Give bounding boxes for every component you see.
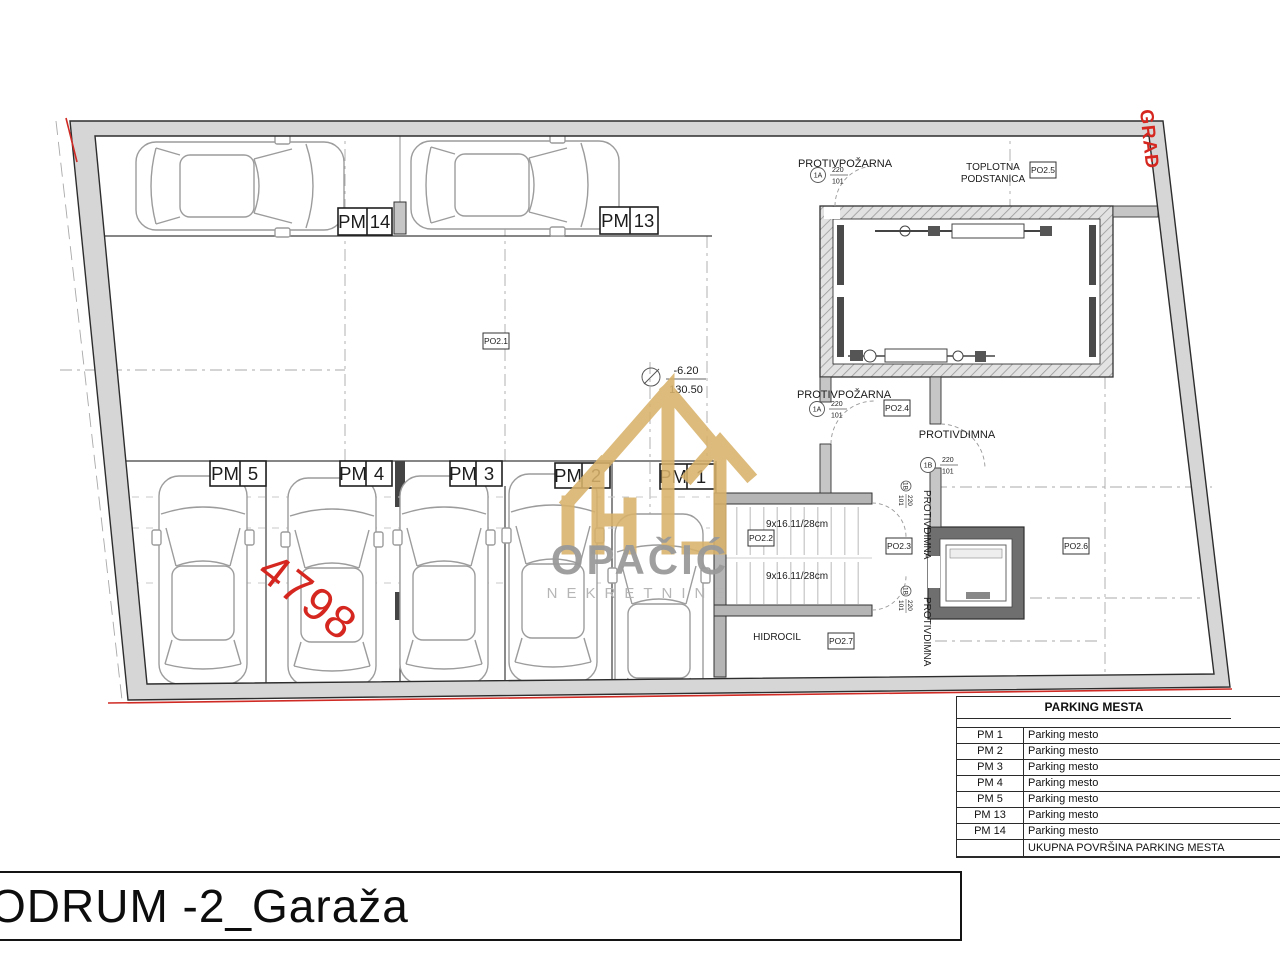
elevator-shaft (928, 527, 1024, 619)
door-marker-1b-small-bottom: 1B 220 101 (897, 586, 913, 613)
room-code-po22: PO2.2 (749, 533, 773, 543)
room-code-po24: PO2.4 (885, 403, 909, 413)
svg-text:5: 5 (248, 463, 258, 484)
svg-text:PM: PM (554, 465, 582, 486)
boundary-label-grad: GRAĐ (1135, 108, 1162, 170)
svg-text:220: 220 (832, 167, 844, 174)
spot-desc-cell: Parking mesto (1024, 776, 1280, 791)
spot-desc-cell: Parking mesto (1024, 728, 1280, 743)
door-marker-1b-small-top: 1B 220 101 (897, 481, 913, 508)
parking-table-spacer (957, 719, 1280, 728)
table-row: PM 1 Parking mesto (957, 728, 1280, 744)
svg-text:1B: 1B (924, 463, 933, 470)
svg-text:PM: PM (449, 463, 477, 484)
svg-text:3: 3 (484, 463, 494, 484)
door-label-smoke-v1: PROTIVDIMNA (921, 490, 932, 560)
spot-id-cell: PM 13 (957, 808, 1024, 823)
spot-desc-cell: Parking mesto (1024, 792, 1280, 807)
parking-table: PARKING MESTA PM 1 Parking mesto PM 2 Pa… (956, 696, 1280, 858)
stair-label-flight2: 9x16.11/28cm (766, 571, 828, 582)
spot-id-cell: PM 14 (957, 824, 1024, 839)
title-block: ODRUM -2_Garaža (0, 871, 962, 941)
footer-empty-cell (957, 840, 1024, 856)
svg-text:14: 14 (370, 211, 391, 232)
room-label-toplotna-2: PODSTANICA (961, 174, 1026, 185)
room-code-po21: PO2.1 (484, 336, 508, 346)
svg-text:101: 101 (897, 495, 904, 506)
door-label-fire-top: PROTIVPOŽARNA (798, 157, 893, 170)
table-row: PM 4 Parking mesto (957, 776, 1280, 792)
svg-text:101: 101 (832, 179, 844, 186)
heat-substation-room (820, 206, 1113, 377)
table-row: PM 14 Parking mesto (957, 824, 1280, 840)
svg-text:1: 1 (696, 466, 706, 487)
room-code-po23: PO2.3 (887, 541, 911, 551)
parking-table-title: PARKING MESTA (957, 697, 1231, 719)
level-marker: -6.20 130.50 (642, 365, 706, 396)
svg-text:4: 4 (374, 463, 384, 484)
svg-text:1A: 1A (813, 407, 822, 414)
svg-text:220: 220 (942, 457, 954, 464)
door-label-smoke-h: PROTIVDIMNA (919, 429, 996, 441)
svg-text:PM: PM (211, 463, 239, 484)
spot-id-cell: PM 1 (957, 728, 1024, 743)
svg-text:220: 220 (906, 495, 913, 506)
spot-id-cell: PM 5 (957, 792, 1024, 807)
spot-id-cell: PM 2 (957, 744, 1024, 759)
sheet-title: ODRUM -2_Garaža (0, 879, 409, 933)
svg-text:1B: 1B (902, 482, 909, 490)
level-absolute: 130.50 (669, 384, 703, 396)
svg-text:101: 101 (942, 469, 954, 476)
svg-text:220: 220 (906, 600, 913, 611)
room-code-po26: PO2.6 (1064, 541, 1088, 551)
footer-total-cell: UKUPNA POVRŠINA PARKING MESTA (1024, 840, 1280, 856)
spot-desc-cell: Parking mesto (1024, 824, 1280, 839)
spot-id-cell: PM 3 (957, 760, 1024, 775)
spot-desc-cell: Parking mesto (1024, 808, 1280, 823)
table-footer-row: UKUPNA POVRŠINA PARKING MESTA (957, 840, 1280, 857)
parking-spot-label-texts: PM14 PM13 PM5 PM4 PM3 PM2 PM1 (211, 210, 706, 487)
level-relative: -6.20 (673, 365, 698, 377)
stair-label-flight1: 9x16.11/28cm (766, 519, 828, 530)
parking-spot-labels (210, 207, 715, 489)
svg-text:PM: PM (601, 210, 629, 231)
door-label-fire-mid: PROTIVPOŽARNA (797, 388, 892, 401)
room-label-toplotna-1: TOPLOTNA (966, 162, 1020, 173)
svg-text:2: 2 (591, 465, 601, 486)
svg-text:101: 101 (831, 413, 843, 420)
table-row: PM 13 Parking mesto (957, 808, 1280, 824)
table-row: PM 2 Parking mesto (957, 744, 1280, 760)
svg-text:220: 220 (831, 401, 843, 408)
svg-text:1B: 1B (902, 587, 909, 595)
room-code-po25: PO2.5 (1031, 165, 1055, 175)
svg-text:PM: PM (339, 463, 367, 484)
table-row: PM 3 Parking mesto (957, 760, 1280, 776)
svg-text:13: 13 (634, 210, 655, 231)
room-code-po27: PO2.7 (829, 636, 853, 646)
floor-plan-sheet: PM14 PM13 PM5 PM4 PM3 PM2 PM1 PO2.1 PO2.… (0, 0, 1280, 960)
room-label-hidrocil: HIDROCIL (753, 632, 801, 643)
table-row: PM 5 Parking mesto (957, 792, 1280, 808)
svg-text:PM: PM (659, 466, 687, 487)
door-label-smoke-v2: PROTIVDIMNA (921, 597, 932, 667)
spot-desc-cell: Parking mesto (1024, 760, 1280, 775)
svg-text:101: 101 (897, 600, 904, 611)
door-marker-1a-mid: 1A 220 101 (810, 401, 848, 420)
svg-text:PM: PM (338, 211, 366, 232)
svg-text:1A: 1A (814, 173, 823, 180)
spot-desc-cell: Parking mesto (1024, 744, 1280, 759)
spot-id-cell: PM 4 (957, 776, 1024, 791)
